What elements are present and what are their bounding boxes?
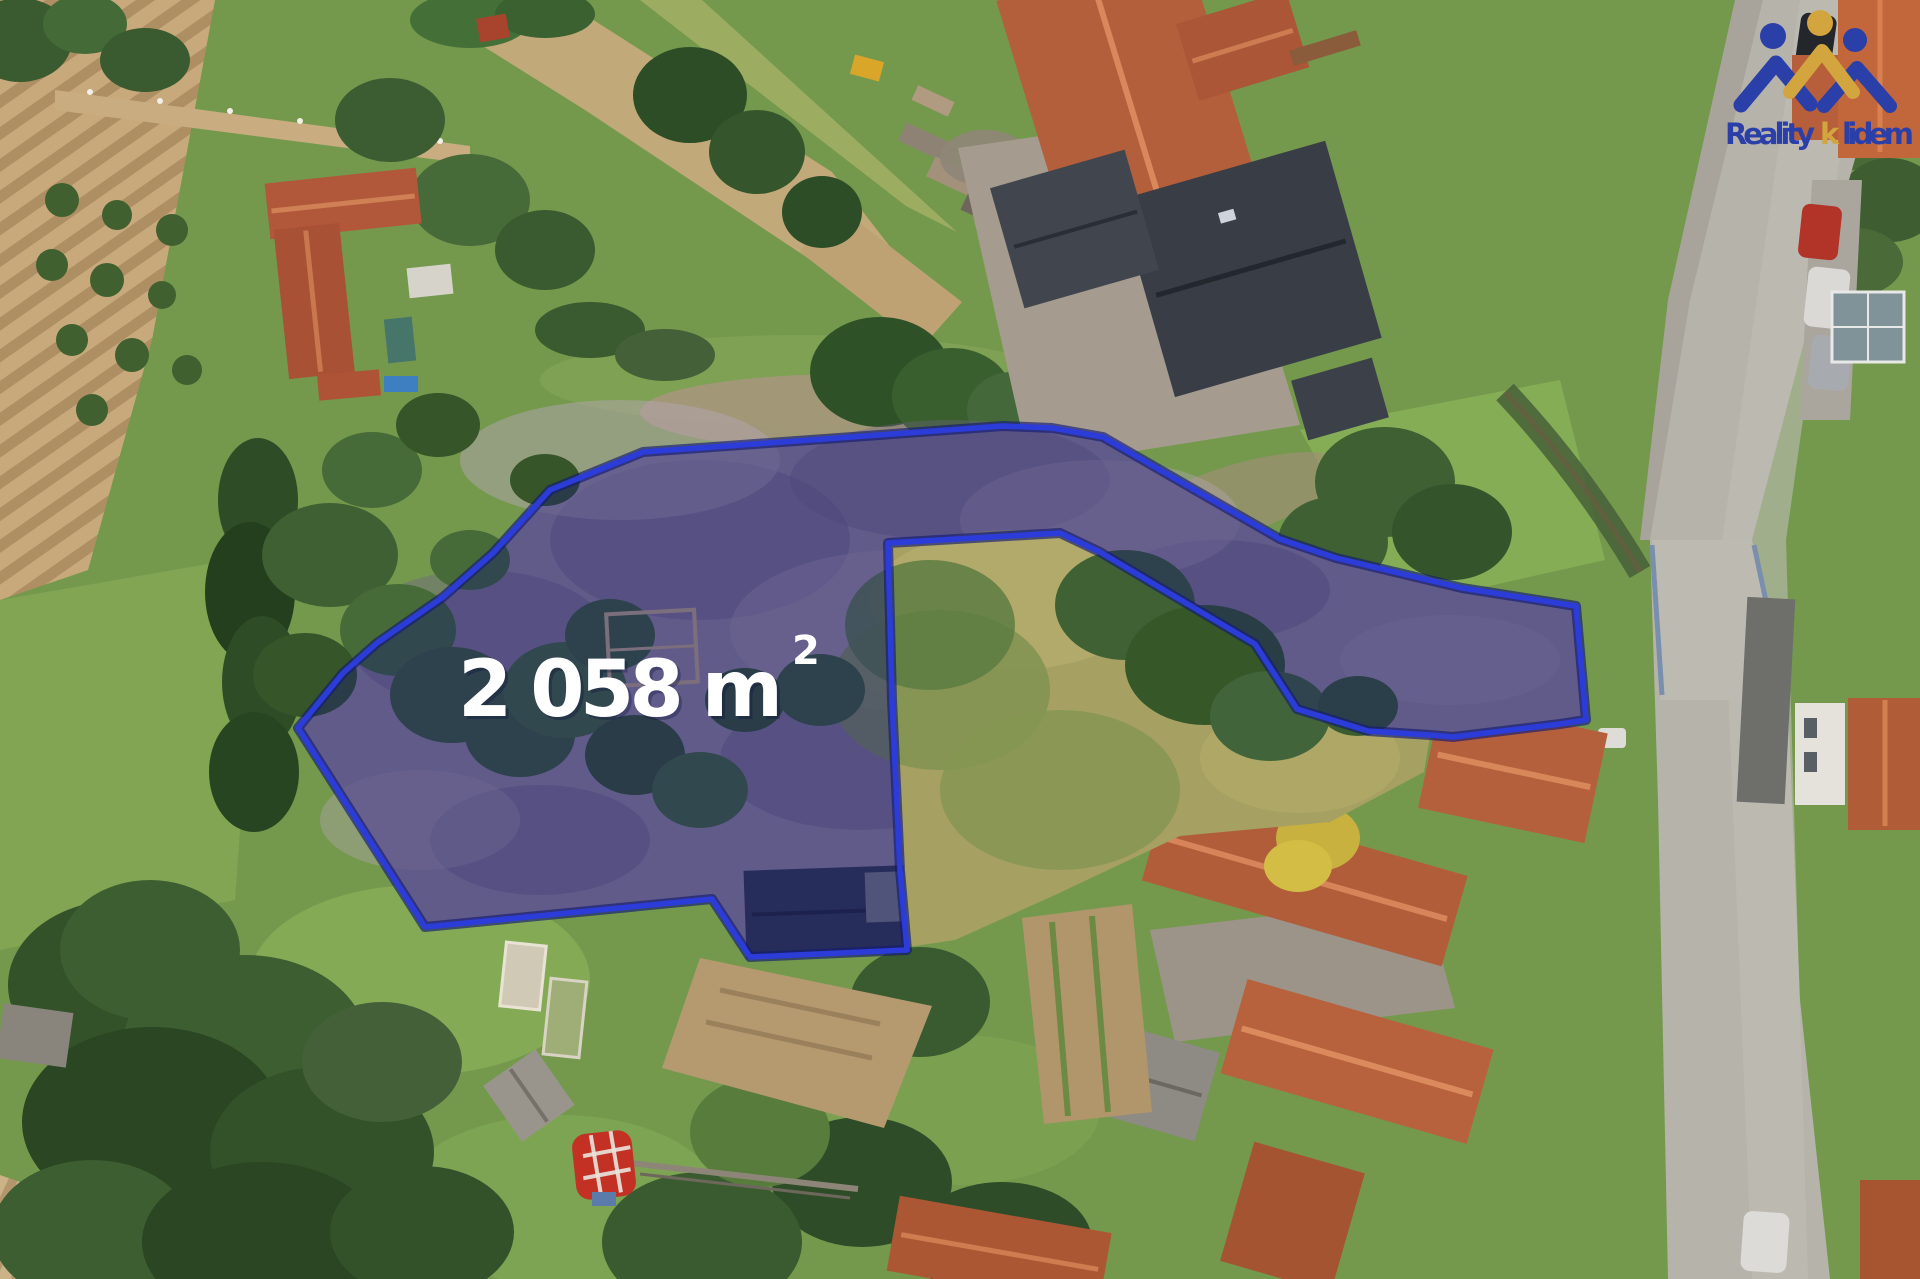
conservatory bbox=[1832, 292, 1904, 362]
blue-tarp bbox=[592, 1192, 616, 1206]
area-label-text: 2 058 m bbox=[458, 645, 783, 735]
window bbox=[1804, 718, 1817, 738]
pool-blue bbox=[384, 376, 418, 392]
shed-red-roof bbox=[317, 369, 381, 400]
logo-person-left-head bbox=[1760, 23, 1786, 49]
aerial-photo: 2 058 m 2 058 m 2 Reality k lidem bbox=[0, 0, 1920, 1279]
logo-word-lidem: lidem bbox=[1842, 117, 1914, 151]
area-label: 2 058 m 2 058 m 2 bbox=[458, 628, 820, 738]
logo-wordmark: Reality k lidem bbox=[1725, 117, 1914, 151]
logo-letter-k: k bbox=[1820, 117, 1840, 151]
conifer-tree bbox=[782, 176, 862, 248]
screenshot-root: 2 058 m 2 058 m 2 Reality k lidem bbox=[0, 0, 1920, 1279]
car-white bbox=[1740, 1210, 1790, 1273]
trailer-white bbox=[407, 264, 454, 298]
red-roof bbox=[1860, 1180, 1920, 1279]
raised-bed bbox=[500, 942, 546, 1010]
spruce-tree bbox=[209, 712, 299, 832]
tree bbox=[1392, 484, 1512, 580]
car-red bbox=[1797, 203, 1842, 261]
tree bbox=[302, 1002, 462, 1122]
tree bbox=[60, 880, 240, 1020]
tree bbox=[100, 28, 190, 92]
red-canopy bbox=[571, 1129, 638, 1201]
yellow-tree bbox=[1264, 840, 1332, 892]
logo-word-reality: Reality bbox=[1725, 117, 1815, 151]
house-right-mid bbox=[1848, 698, 1920, 830]
logo-person-gold-head bbox=[1807, 10, 1833, 36]
hedge bbox=[615, 329, 715, 381]
logo-person-right-head bbox=[1843, 28, 1867, 52]
area-label-superscript: 2 bbox=[792, 628, 820, 674]
shed-teal bbox=[384, 317, 416, 364]
hut-red-roof bbox=[476, 14, 510, 43]
conifer-tree bbox=[709, 110, 805, 194]
window bbox=[1804, 752, 1817, 772]
shed bbox=[0, 1003, 73, 1067]
tree bbox=[495, 210, 595, 290]
garden-bed bbox=[1022, 904, 1152, 1124]
raised-bed bbox=[543, 978, 587, 1057]
white-building bbox=[1795, 703, 1845, 805]
tree bbox=[335, 78, 445, 162]
